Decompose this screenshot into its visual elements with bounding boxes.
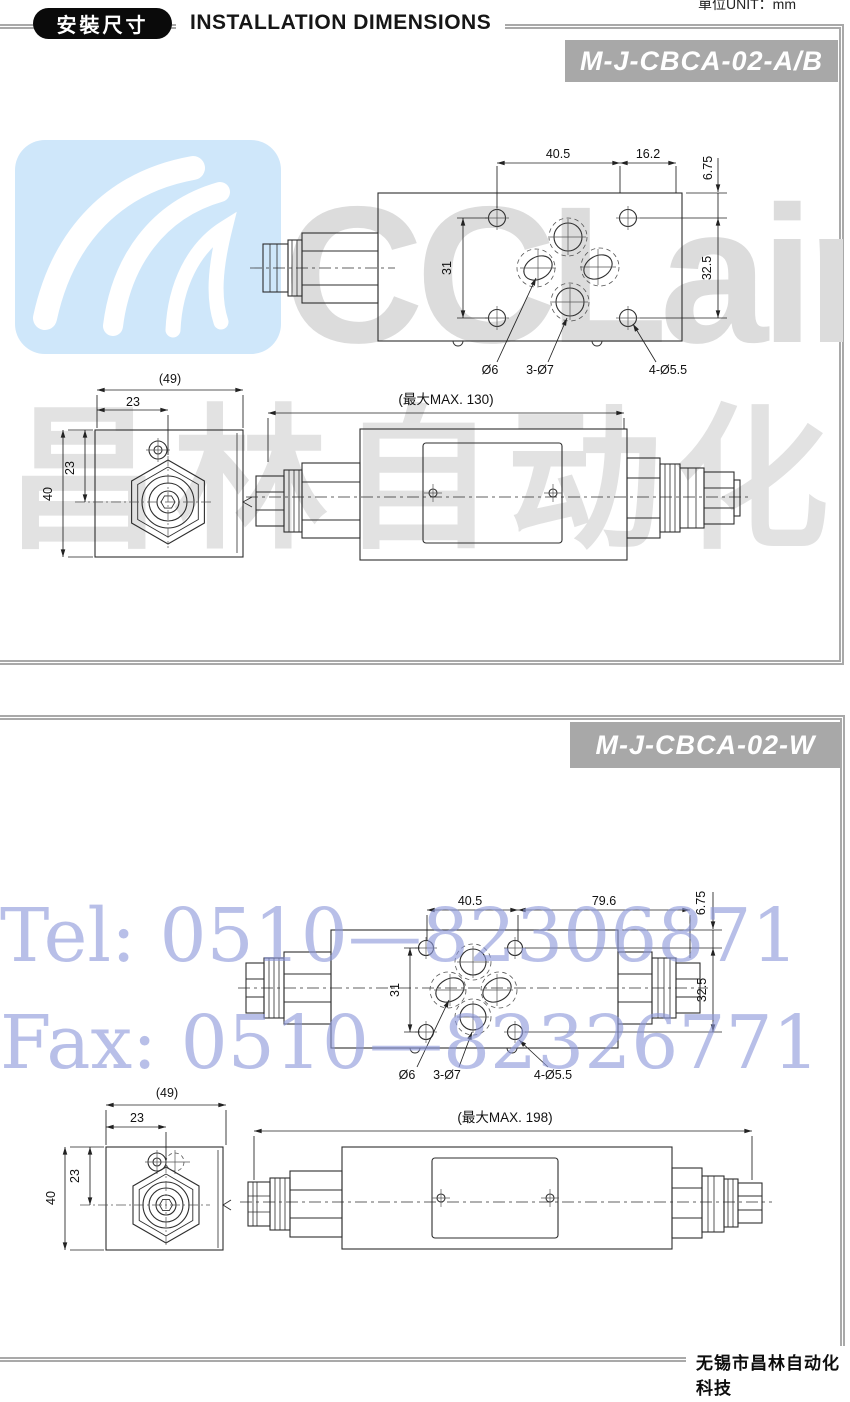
section-badge: 安裝尺寸 [33, 8, 172, 39]
model-banner-w: M-J-CBCA-02-W [570, 722, 841, 768]
footer-company: 无锡市昌林自动化科技 [686, 1346, 850, 1402]
fax-watermark: Fax: 0510—82326771 [0, 1000, 820, 1086]
brand-logo-watermark [15, 140, 281, 354]
model-banner-ab: M-J-CBCA-02-A/B [565, 40, 838, 82]
brand-cn-watermark: 昌林自动化 [6, 400, 850, 570]
brand-swoosh-icon [15, 140, 281, 354]
brand-text-watermark: CCLair [283, 168, 843, 398]
catalog-page: { "header": { "badge": "安裝尺寸", "title": … [0, 0, 850, 1384]
page-title: INSTALLATION DIMENSIONS [176, 6, 505, 40]
tel-watermark: Tel: 0510—82306871 [0, 893, 799, 979]
unit-label: 單位UNIT：mm [698, 0, 796, 14]
